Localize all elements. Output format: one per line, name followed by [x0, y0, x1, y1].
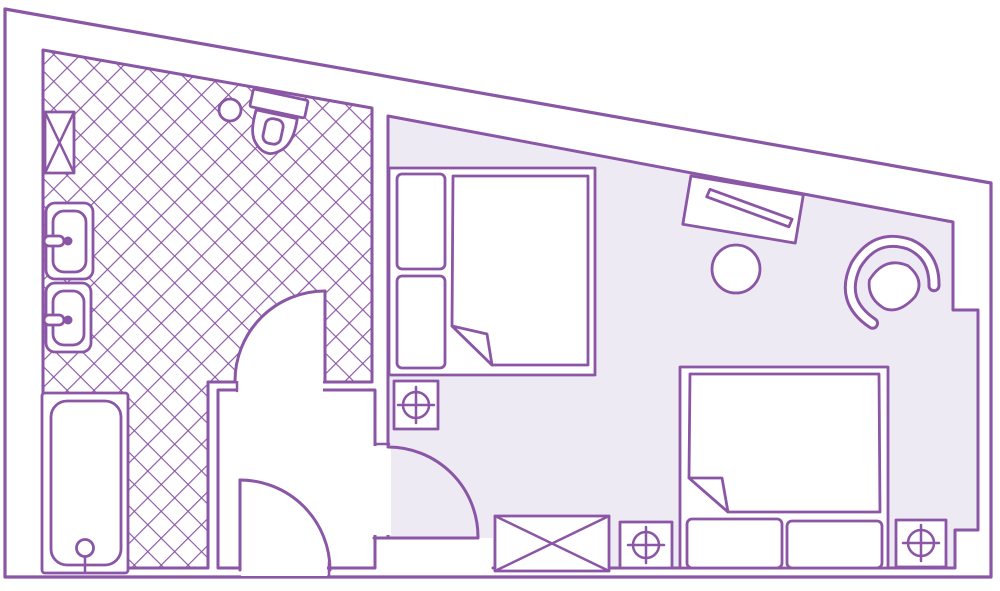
double-bed-upper: [389, 168, 595, 375]
round-stool: [712, 245, 760, 293]
double-bed-lower: [680, 367, 888, 568]
wall-shelf-x-box: [45, 112, 74, 173]
toilet-roll-icon: [219, 99, 241, 121]
sink-lower-faucet-knob: [64, 316, 73, 325]
floor-plan-canvas: [0, 0, 1000, 591]
bathtub: [42, 393, 128, 573]
sink-upper-faucet: [44, 236, 64, 246]
bed-lower-pillow-1: [687, 519, 782, 568]
floor-plan-svg: [0, 0, 1000, 591]
light-fixture-symbol-2: [620, 522, 672, 568]
bed-upper-pillow-2: [397, 276, 445, 368]
bedroom-door-opening: [372, 446, 391, 535]
light-fixture-symbol-1: [394, 381, 438, 429]
sink-upper-faucet-knob: [64, 237, 73, 246]
bathtub-drain: [77, 540, 94, 557]
light-fixture-symbol-3: [896, 520, 946, 567]
bed-lower-pillow-2: [787, 521, 882, 568]
luggage-rack-x: [495, 516, 609, 571]
sink-upper: [44, 203, 93, 279]
bed-upper-pillow-1: [397, 174, 445, 269]
toilet-bowl-inner: [262, 117, 285, 145]
entry-door-opening: [241, 562, 327, 576]
sink-lower: [44, 283, 91, 352]
sink-lower-faucet: [44, 315, 64, 325]
